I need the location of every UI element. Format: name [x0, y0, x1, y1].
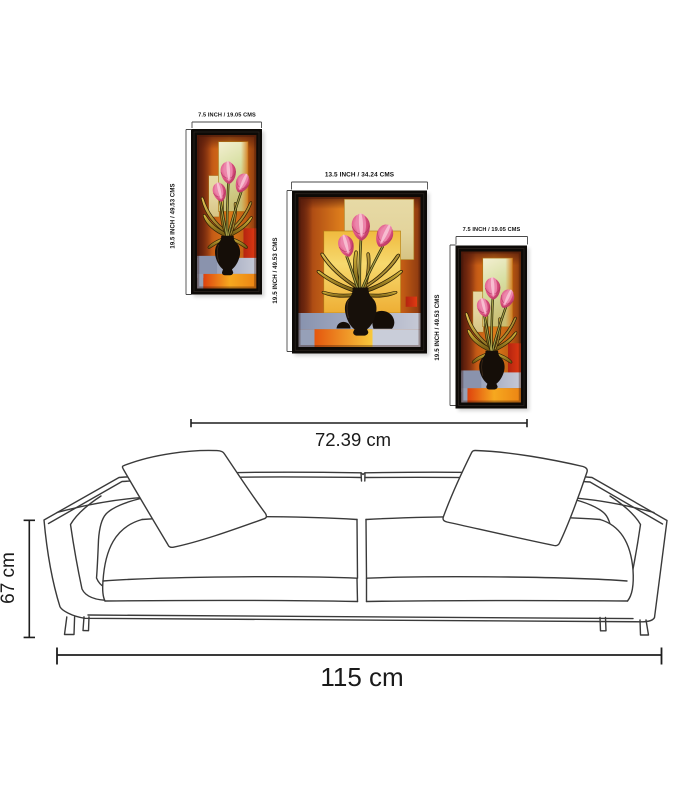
svg-text:115 cm: 115 cm: [320, 662, 403, 692]
svg-text:72.39 cm: 72.39 cm: [315, 429, 391, 450]
svg-text:19.5 INCH / 49.53 CMS: 19.5 INCH / 49.53 CMS: [171, 183, 177, 248]
svg-text:13.5 INCH / 34.24 CMS: 13.5 INCH / 34.24 CMS: [325, 172, 395, 179]
svg-text:67 cm: 67 cm: [0, 552, 19, 604]
svg-text:19.5 INCH / 49.53 CMS: 19.5 INCH / 49.53 CMS: [272, 237, 279, 303]
svg-text:19.5 INCH / 49.53 CMS: 19.5 INCH / 49.53 CMS: [434, 294, 441, 360]
svg-text:7.5 INCH / 19.05 CMS: 7.5 INCH / 19.05 CMS: [198, 113, 256, 119]
svg-text:7.5 INCH / 19.05 CMS: 7.5 INCH / 19.05 CMS: [463, 227, 521, 233]
